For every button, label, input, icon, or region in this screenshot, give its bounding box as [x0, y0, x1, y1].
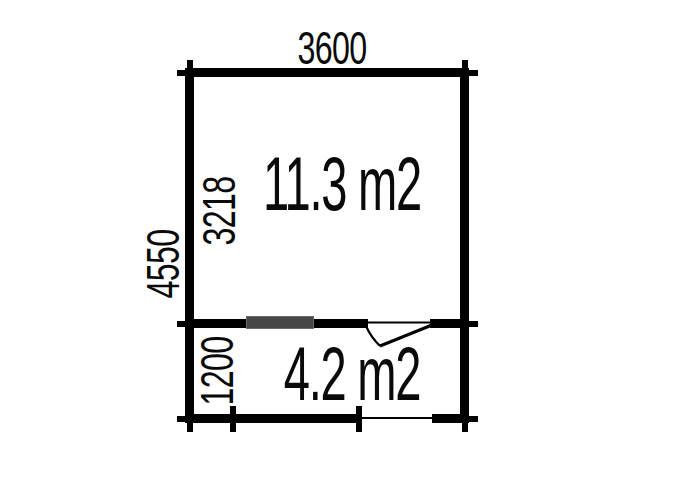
room1-area-label: 11.3 m2: [263, 146, 421, 222]
dimension-room1-height: 3218: [196, 177, 242, 246]
room2-area-label: 4.2 m2: [284, 336, 421, 412]
floor-plan: 3600 4550 3218 1200 11.3 m2 4.2 m2: [0, 0, 679, 480]
dimension-overall-width: 3600: [298, 25, 367, 71]
dimension-room2-height: 1200: [194, 337, 240, 406]
dimension-overall-height: 4550: [140, 230, 186, 299]
